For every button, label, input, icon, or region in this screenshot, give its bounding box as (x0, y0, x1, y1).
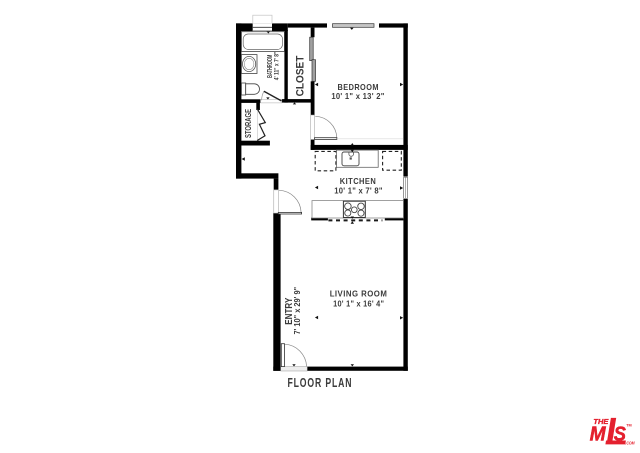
svg-text:7' 10" x 29' 9": 7' 10" x 29' 9" (293, 287, 302, 335)
svg-text:STORAGE: STORAGE (244, 109, 253, 138)
svg-text:10' 1" x 16' 4": 10' 1" x 16' 4" (333, 298, 384, 308)
svg-text:10' 1" x 7' 8": 10' 1" x 7' 8" (334, 186, 383, 196)
svg-text:4' 11" x 7' 8": 4' 11" x 7' 8" (274, 52, 281, 81)
svg-text:KITCHEN: KITCHEN (340, 176, 377, 186)
svg-text:.COM: .COM (625, 440, 634, 445)
svg-text:LIVING ROOM: LIVING ROOM (330, 288, 388, 298)
svg-text:FLOOR PLAN: FLOOR PLAN (288, 375, 353, 390)
svg-text:CLOSET: CLOSET (295, 55, 307, 96)
svg-text:10' 1" x 13' 2": 10' 1" x 13' 2" (331, 91, 384, 101)
svg-text:TM: TM (626, 424, 631, 428)
svg-text:M: M (590, 423, 607, 445)
